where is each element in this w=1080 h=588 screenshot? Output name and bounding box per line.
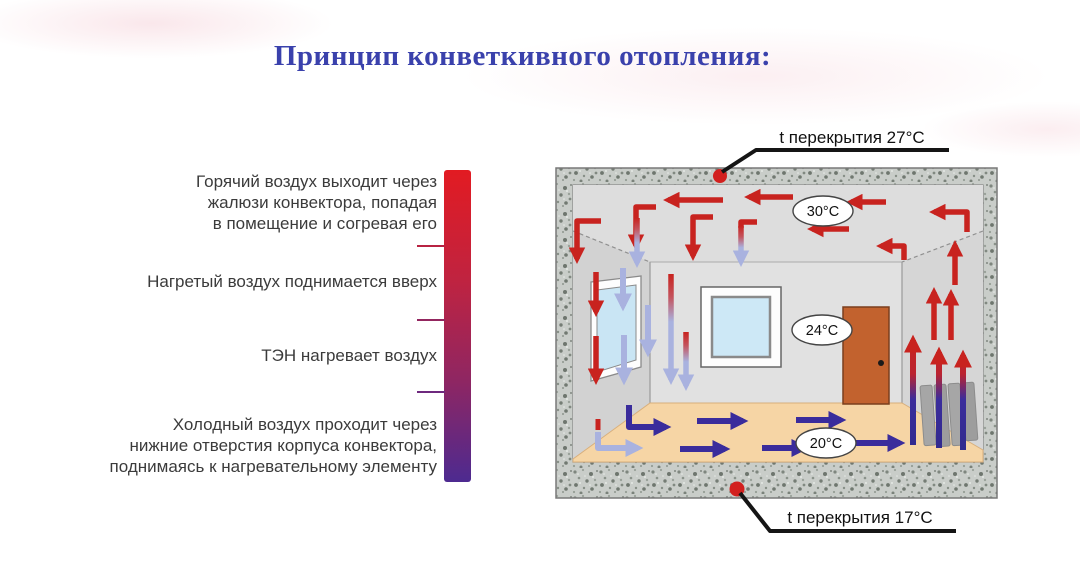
back-window-glass <box>712 297 770 357</box>
left-window-glass <box>597 285 636 372</box>
room-diagram: 30°C 24°C 20°C t перекрытия 27°C t перек… <box>0 0 1080 588</box>
door <box>843 307 889 404</box>
temp-value-middle: 24°C <box>806 323 838 339</box>
ceiling-callout-text: t перекрытия 27°C <box>779 128 924 147</box>
door-knob <box>878 360 884 366</box>
temp-value-upper: 30°C <box>807 204 839 220</box>
floor-callout-text: t перекрытия 17°C <box>787 508 932 527</box>
page: Принцип конветкивного отопления: Горячий… <box>0 0 1080 588</box>
temp-value-lower: 20°C <box>810 436 842 452</box>
door-panel <box>843 307 889 404</box>
back-window <box>701 287 781 367</box>
